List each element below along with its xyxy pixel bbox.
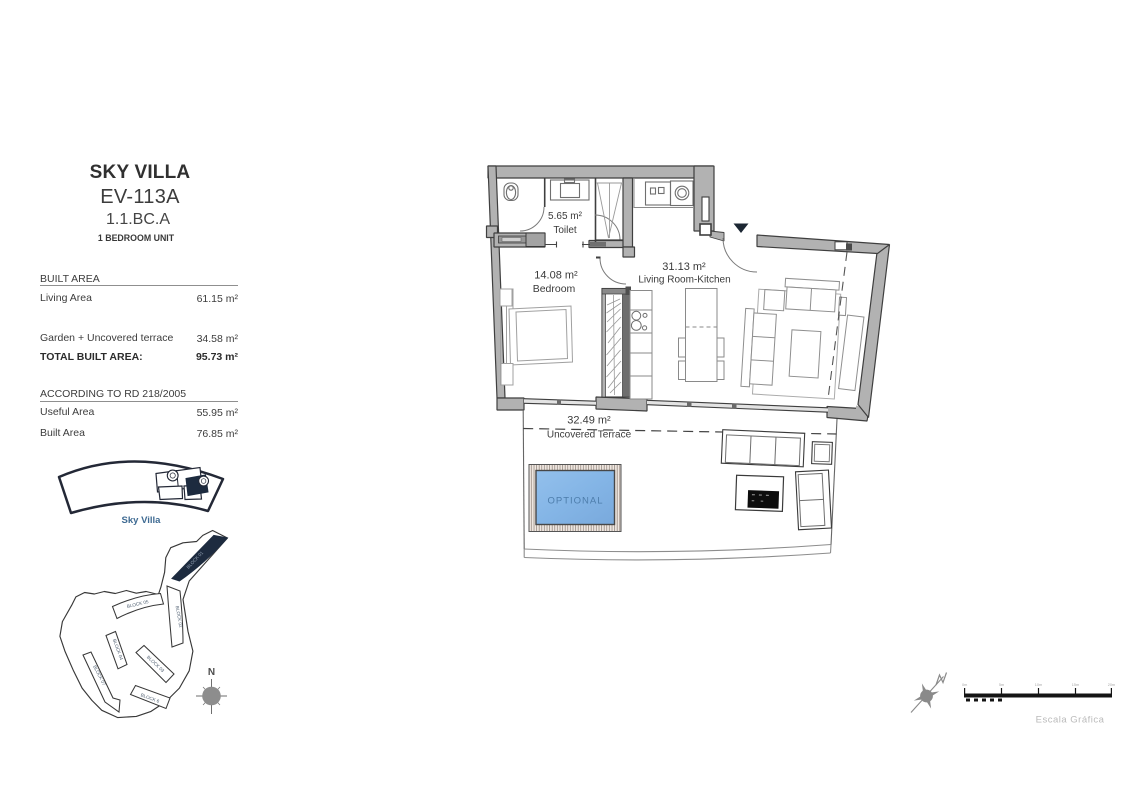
- svg-text:Built Area: Built Area: [40, 427, 85, 439]
- svg-text:20m: 20m: [1108, 683, 1115, 687]
- svg-text:OPTIONAL: OPTIONAL: [547, 496, 603, 507]
- svg-text:1 BEDROOM UNIT: 1 BEDROOM UNIT: [98, 233, 175, 243]
- svg-text:34.58 m²: 34.58 m²: [197, 333, 239, 345]
- svg-text:Bedroom: Bedroom: [533, 283, 576, 295]
- svg-text:N: N: [208, 667, 215, 678]
- svg-text:14.08 m²: 14.08 m²: [534, 270, 578, 282]
- svg-text:EV-113A: EV-113A: [100, 186, 180, 208]
- svg-text:Living Area: Living Area: [40, 292, 92, 304]
- svg-text:31.13 m²: 31.13 m²: [662, 261, 706, 273]
- svg-text:5.65 m²: 5.65 m²: [548, 211, 583, 222]
- svg-text:BUILT AREA: BUILT AREA: [40, 273, 100, 285]
- svg-text:Useful Area: Useful Area: [40, 406, 94, 418]
- svg-text:61.15 m²: 61.15 m²: [197, 293, 239, 305]
- svg-text:10m: 10m: [1035, 683, 1042, 687]
- svg-text:55.95 m²: 55.95 m²: [197, 407, 239, 419]
- svg-text:0m: 0m: [962, 683, 967, 687]
- svg-text:ACCORDING TO RD 218/2005: ACCORDING TO RD 218/2005: [40, 388, 186, 400]
- svg-text:32.49 m²: 32.49 m²: [567, 415, 611, 427]
- svg-text:Living Room-Kitchen: Living Room-Kitchen: [638, 275, 730, 286]
- svg-text:Sky Villa: Sky Villa: [122, 515, 162, 526]
- svg-text:TOTAL BUILT AREA:: TOTAL BUILT AREA:: [40, 351, 143, 363]
- svg-text:Toilet: Toilet: [553, 225, 577, 236]
- svg-text:5m: 5m: [999, 683, 1004, 687]
- svg-text:Uncovered Terrace: Uncovered Terrace: [547, 430, 632, 441]
- svg-text:15m: 15m: [1072, 683, 1079, 687]
- svg-text:76.85 m²: 76.85 m²: [197, 428, 239, 440]
- svg-text:Escala Gráfica: Escala Gráfica: [1036, 715, 1105, 726]
- svg-text:1.1.BC.A: 1.1.BC.A: [106, 211, 170, 228]
- svg-text:Garden + Uncovered terrace: Garden + Uncovered terrace: [40, 332, 174, 344]
- svg-text:SKY VILLA: SKY VILLA: [90, 162, 191, 183]
- svg-text:95.73 m²: 95.73 m²: [196, 351, 239, 363]
